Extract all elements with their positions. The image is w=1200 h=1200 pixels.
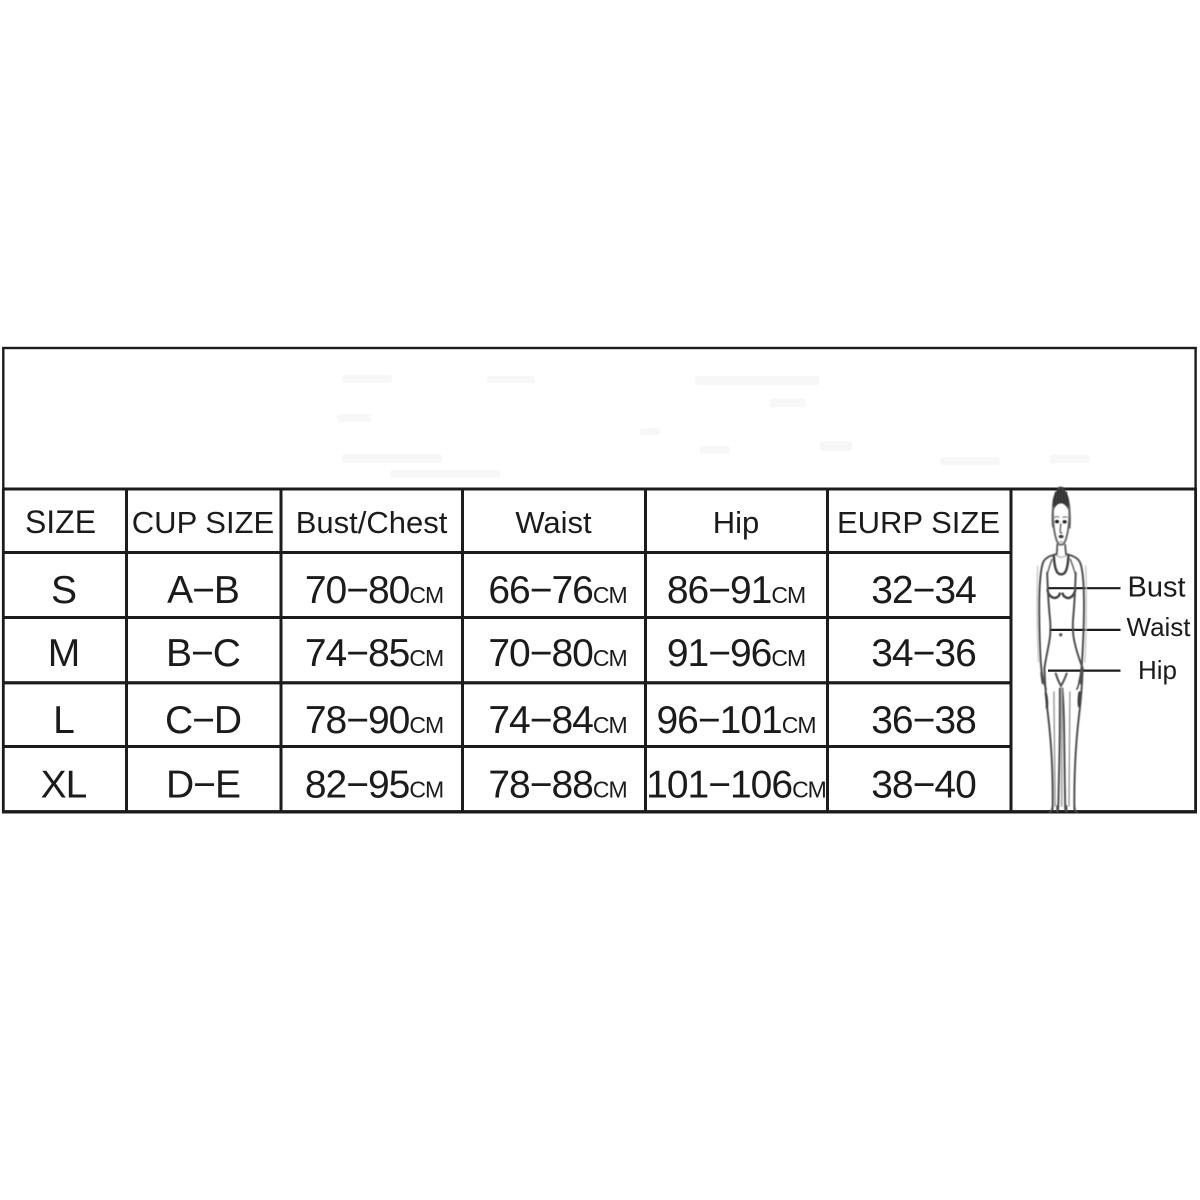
svg-text:CUP SIZE: CUP SIZE <box>132 505 274 540</box>
svg-text:D−E: D−E <box>166 763 240 806</box>
svg-text:Bust/Chest: Bust/Chest <box>296 505 448 540</box>
svg-text:B−C: B−C <box>166 632 240 675</box>
svg-text:Bust: Bust <box>1128 572 1186 604</box>
svg-text:34−36: 34−36 <box>871 632 976 675</box>
svg-text:32−34: 32−34 <box>871 569 976 612</box>
svg-text:A−B: A−B <box>167 569 239 612</box>
svg-text:36−38: 36−38 <box>871 699 976 742</box>
svg-text:M: M <box>48 632 80 675</box>
svg-text:SIZE: SIZE <box>25 504 96 540</box>
svg-text:XL: XL <box>41 763 87 806</box>
svg-text:S: S <box>51 569 76 612</box>
svg-text:C−D: C−D <box>165 699 241 742</box>
svg-text:38−40: 38−40 <box>871 763 976 806</box>
svg-text:L: L <box>53 699 74 742</box>
svg-text:Hip: Hip <box>1138 655 1177 685</box>
svg-text:Waist: Waist <box>515 505 592 540</box>
svg-text:EURP SIZE: EURP SIZE <box>837 505 1000 540</box>
svg-text:Hip: Hip <box>713 505 760 540</box>
svg-text:Waist: Waist <box>1127 612 1192 642</box>
